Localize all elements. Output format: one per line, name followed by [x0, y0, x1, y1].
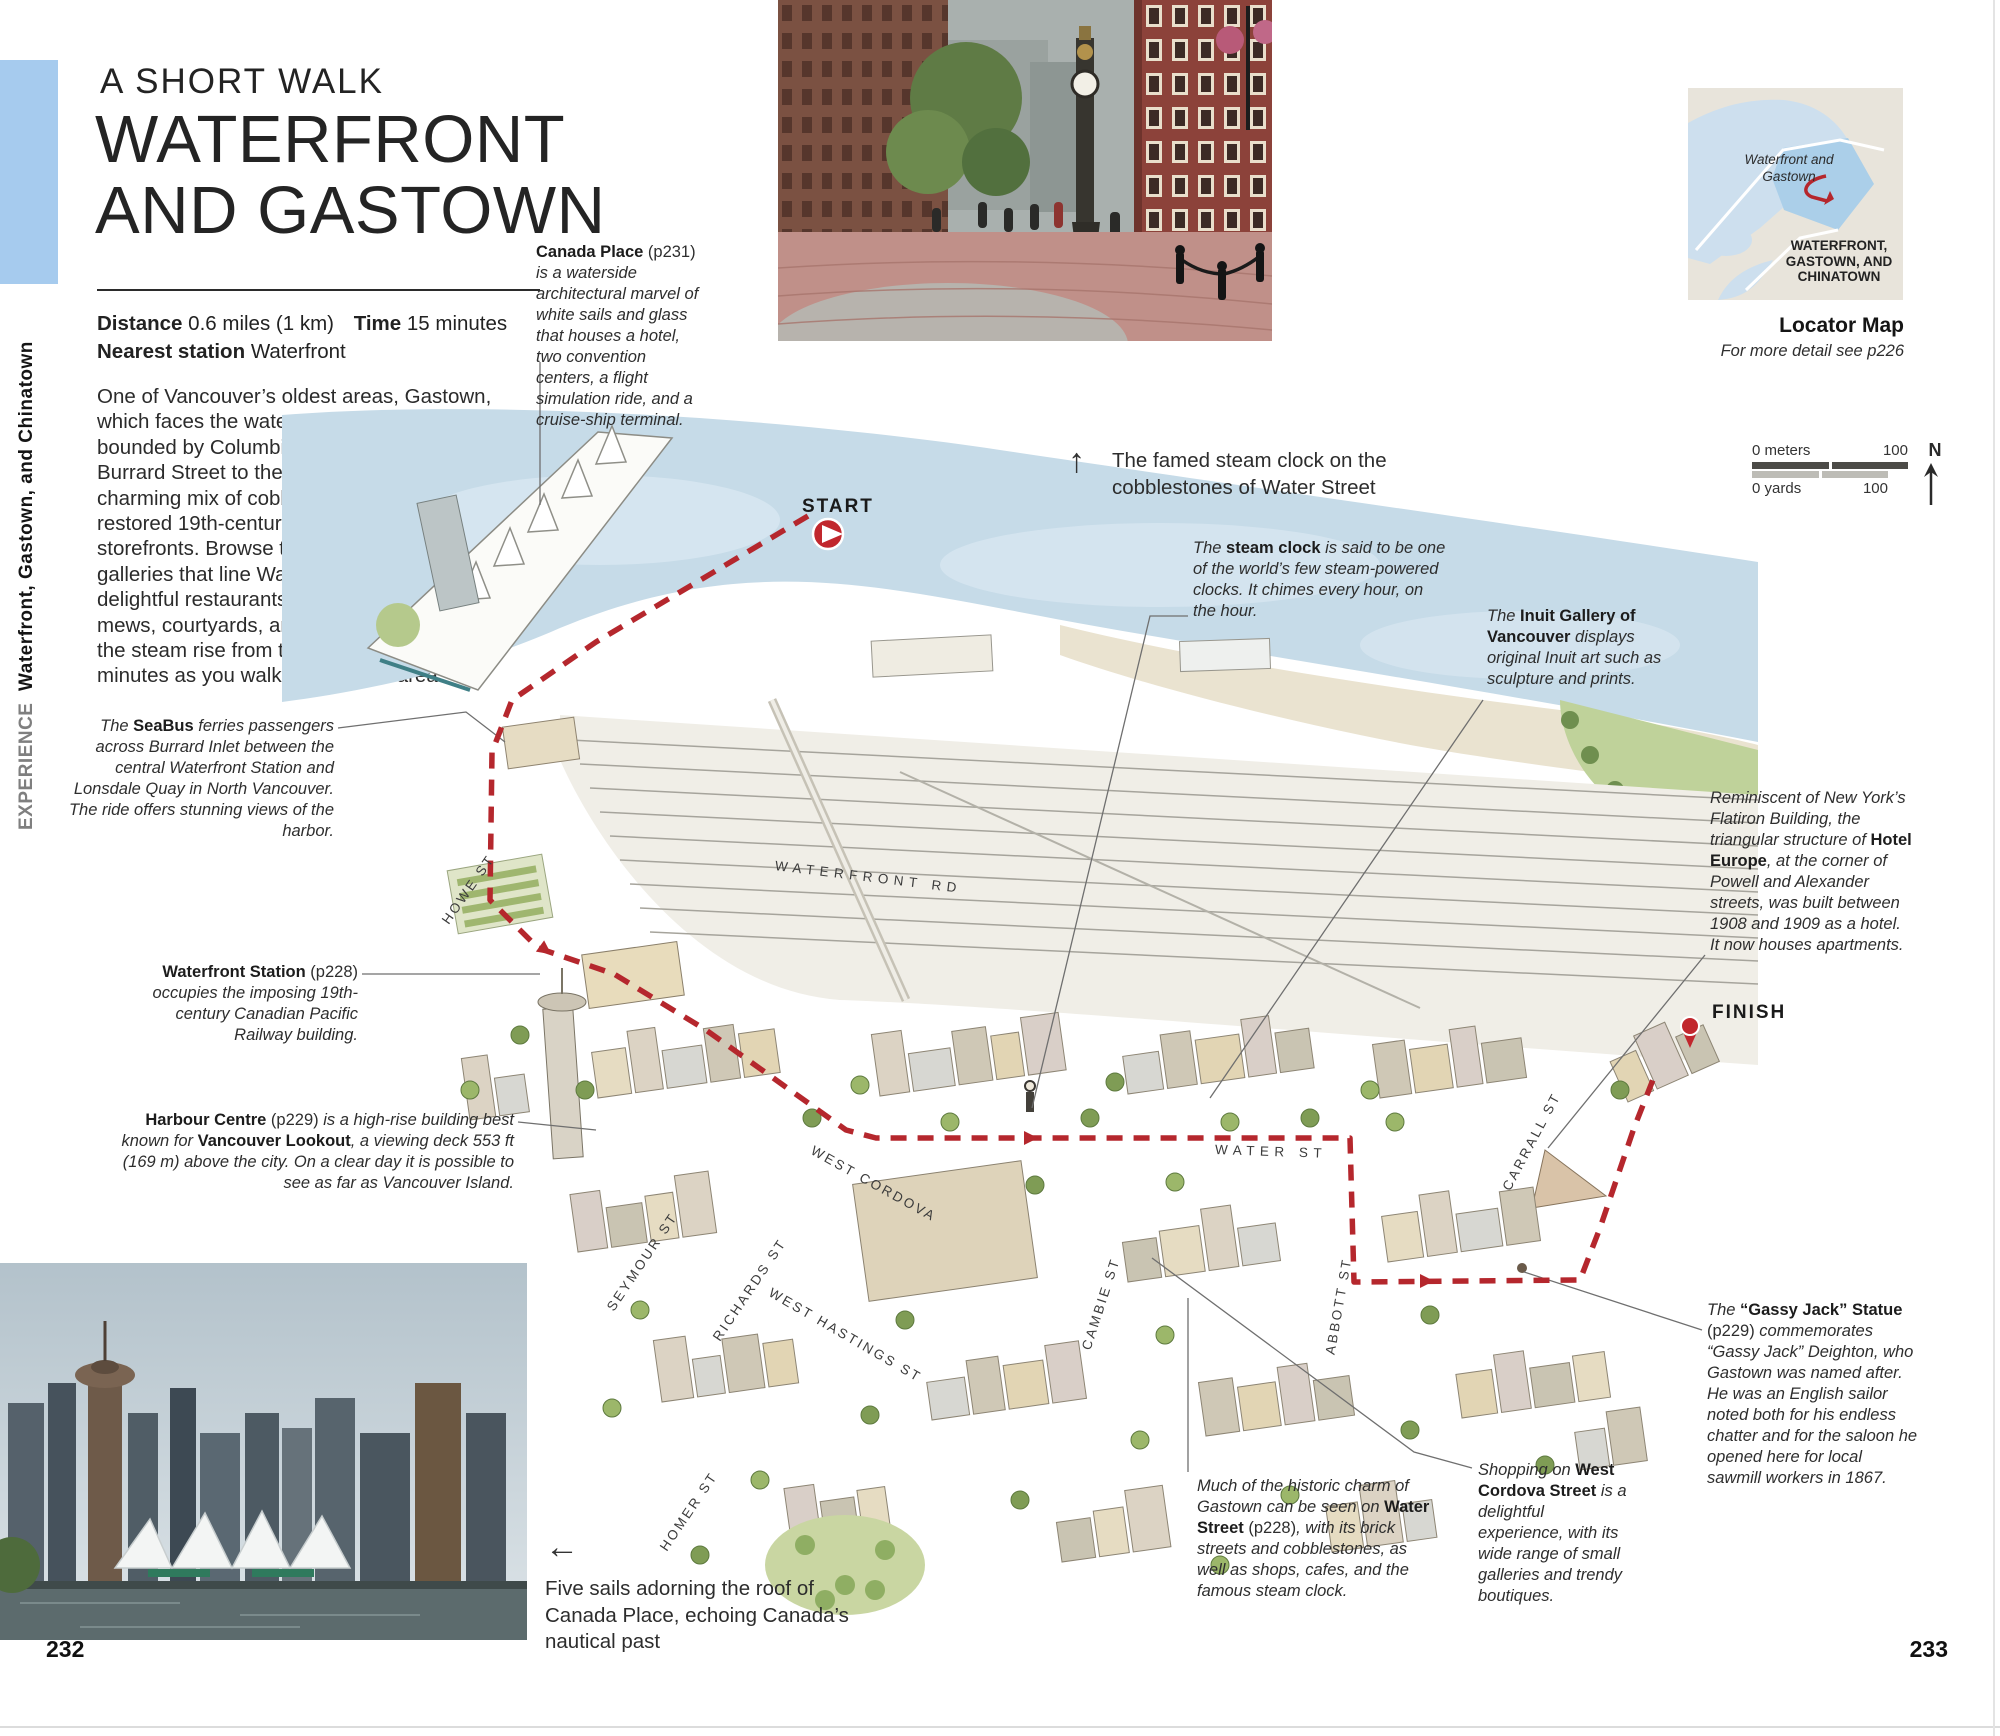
- annotation-inuit-gallery: The Inuit Gallery of Vancouver displays …: [1487, 606, 1679, 690]
- locator-title: Locator Map: [1690, 314, 1904, 338]
- canada-place-photo-art: [0, 1263, 527, 1640]
- route-start-label: START: [802, 496, 874, 518]
- annotation-steam-clock: The steam clock is said to be one of the…: [1193, 538, 1448, 622]
- route-finish-label: FINISH: [1712, 1002, 1786, 1024]
- guidebook-spread: A SHORT WALK WATERFRONT AND GASTOWN Dist…: [0, 0, 2000, 1736]
- steam-clock-photo-art: [778, 0, 1272, 341]
- annotation-hotel-europe: Reminiscent of New York’s Flatiron Build…: [1710, 788, 1912, 956]
- steam-clock-photo: [778, 0, 1272, 341]
- scale-meters-left: 0 meters: [1752, 442, 1810, 459]
- annotation-gassy-jack: The “Gassy Jack” Statue (p229) commemora…: [1707, 1300, 1919, 1489]
- locator-area-label: Waterfront and Gastown: [1733, 152, 1845, 186]
- canada-place-caption: Five sails adorning the roof of Canada P…: [545, 1576, 855, 1656]
- scale-bar-yards: [1752, 471, 1888, 478]
- annotation-canada-place: Canada Place (p231) is a waterside archi…: [536, 242, 704, 431]
- annotation-waterfront-station: Waterfront Station (p228) occupies the i…: [118, 962, 358, 1046]
- north-label: N: [1920, 440, 1950, 461]
- annotation-water-street: Much of the historic charm of Gastown ca…: [1197, 1476, 1431, 1602]
- annotation-seabus: The SeaBus ferries passengers across Bur…: [58, 716, 334, 842]
- scale-yards-right: 100: [1863, 480, 1888, 497]
- canada-place-photo: [0, 1263, 527, 1640]
- locator-subtitle: For more detail see p226: [1690, 342, 1904, 361]
- page-number-left: 232: [46, 1636, 84, 1663]
- scale-meters-right: 100: [1883, 442, 1908, 459]
- steam-clock-caption: The famed steam clock on the cobblestone…: [1112, 448, 1462, 501]
- scale-yards-left: 0 yards: [1752, 480, 1801, 497]
- annotation-west-cordova: Shopping on West Cordova Street is a del…: [1478, 1460, 1633, 1607]
- annotation-harbour-centre: Harbour Centre (p229) is a high-rise bui…: [112, 1110, 514, 1194]
- locator-district-label: WATERFRONT, GASTOWN, AND CHINATOWN: [1784, 238, 1894, 285]
- page-number-right: 233: [1910, 1636, 1948, 1663]
- map-scale-bar: 0 meters 100 0 yards 100: [1752, 442, 1908, 497]
- north-arrow-icon: [1920, 461, 1942, 507]
- left-arrow-icon: ←: [545, 1528, 579, 1567]
- up-arrow-icon: ↑: [1068, 442, 1085, 481]
- north-indicator: N: [1920, 440, 1950, 507]
- scale-bar-meters: [1752, 462, 1908, 469]
